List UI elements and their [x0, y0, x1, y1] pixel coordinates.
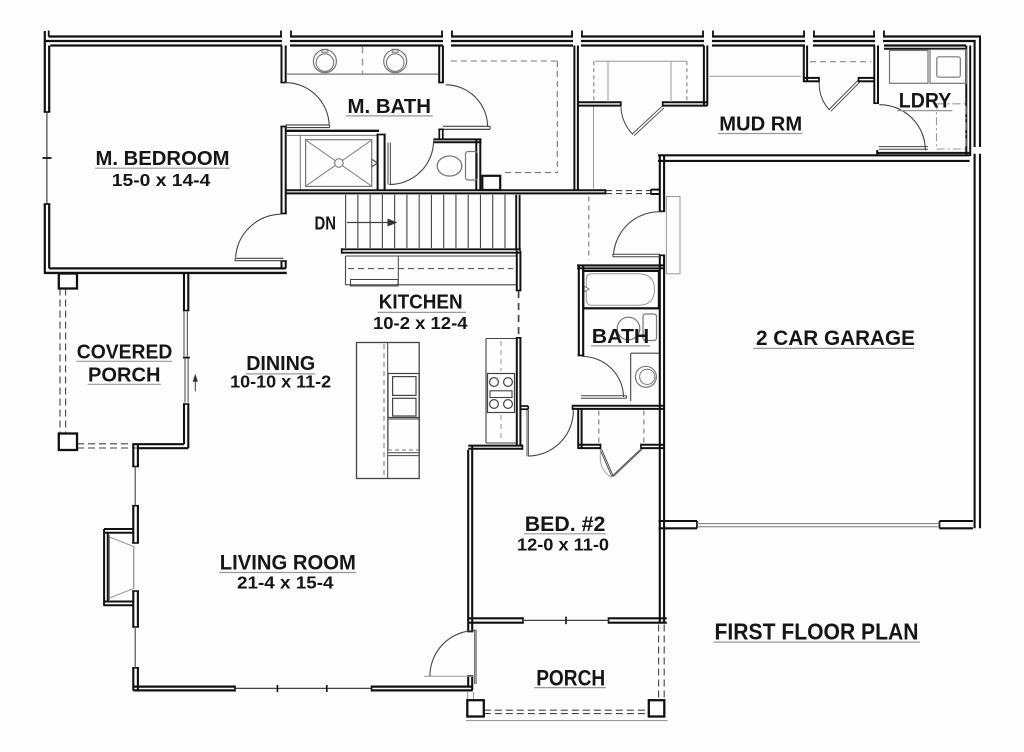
svg-text:LIVING ROOM: LIVING ROOM	[220, 552, 356, 575]
svg-text:BATH: BATH	[592, 325, 650, 348]
svg-text:DN: DN	[315, 213, 337, 234]
svg-text:10-2 x 12-4: 10-2 x 12-4	[373, 313, 468, 333]
svg-text:21-4 x 15-4: 21-4 x 15-4	[237, 573, 334, 593]
svg-text:FIRST FLOOR PLAN: FIRST FLOOR PLAN	[715, 618, 919, 644]
svg-text:PORCH: PORCH	[536, 665, 605, 690]
svg-text:COVERED: COVERED	[77, 340, 173, 363]
svg-text:2 CAR GARAGE: 2 CAR GARAGE	[756, 326, 915, 350]
svg-text:15-0 x 14-4: 15-0 x 14-4	[112, 170, 211, 190]
svg-text:M. BEDROOM: M. BEDROOM	[96, 147, 230, 170]
svg-text:KITCHEN: KITCHEN	[379, 291, 463, 314]
svg-text:12-0 x 11-0: 12-0 x 11-0	[517, 535, 609, 555]
svg-text:LDRY: LDRY	[899, 90, 952, 113]
svg-text:PORCH: PORCH	[88, 363, 161, 386]
svg-text:MUD RM: MUD RM	[719, 113, 802, 136]
svg-text:BED. #2: BED. #2	[525, 513, 606, 536]
svg-text:M. BATH: M. BATH	[348, 95, 432, 118]
